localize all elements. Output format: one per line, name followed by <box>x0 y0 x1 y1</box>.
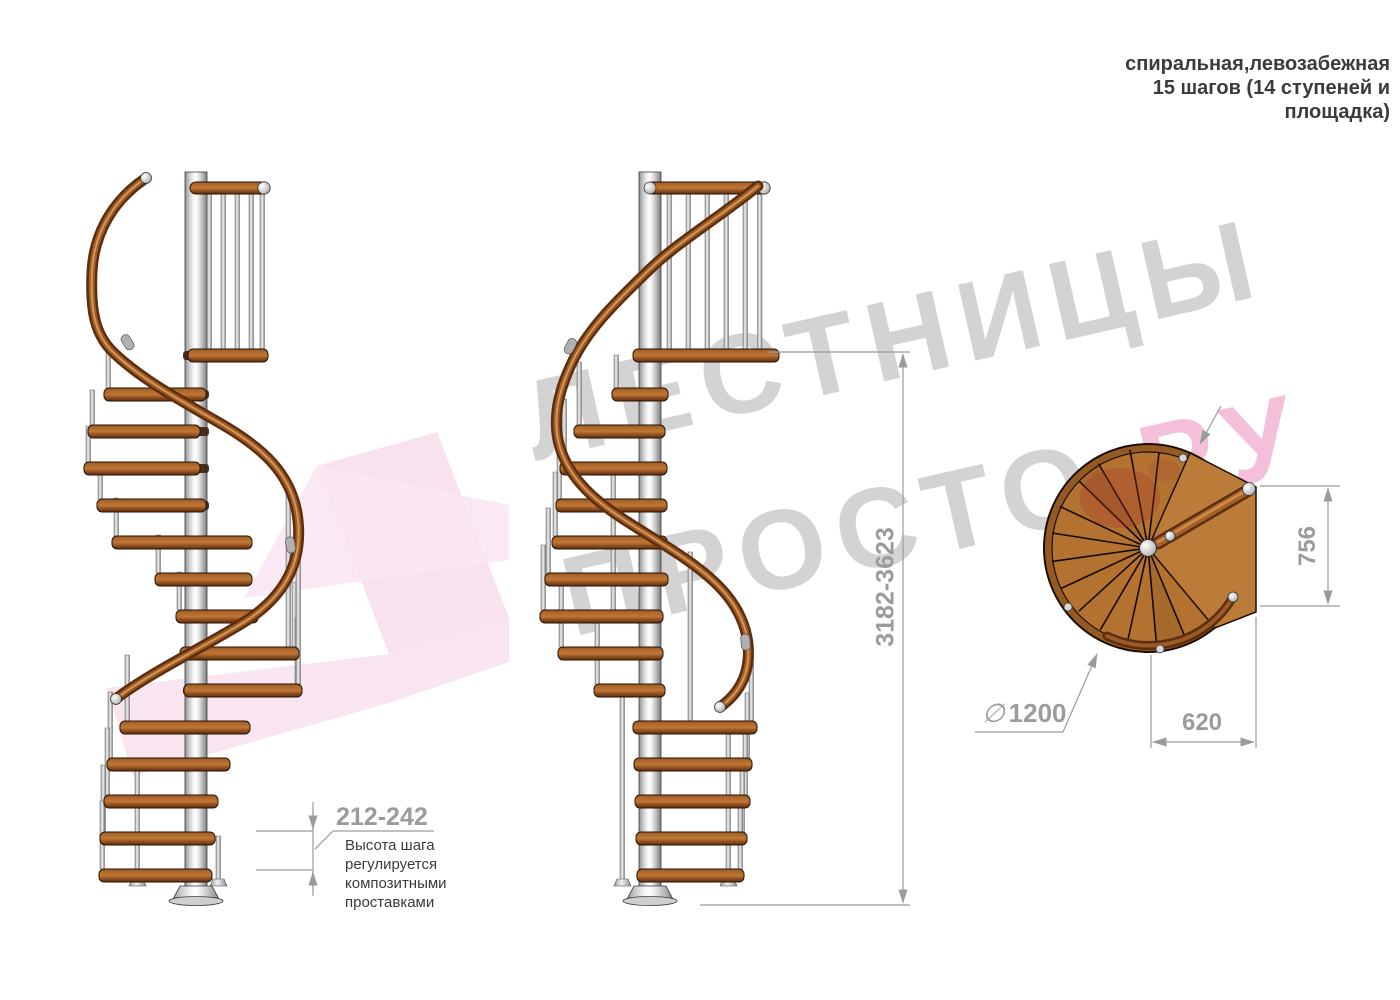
drawing-title: спиральная,левозабежная 15 шагов (14 сту… <box>1125 52 1390 124</box>
dim-label-total-height: 3182-3623 <box>872 527 901 647</box>
dim-label-diameter: ∅1200 <box>982 698 1067 729</box>
dim-label-756: 756 <box>1294 526 1322 566</box>
note-line2: регулируется <box>345 855 447 874</box>
diameter-icon: ∅ <box>982 698 1005 728</box>
dim-value-total-height: 3182-3623 <box>872 527 900 647</box>
step-height-note: Высота шага регулируется композитными пр… <box>345 836 447 912</box>
dim-value-diameter: 1200 <box>1009 698 1067 728</box>
dim-value-756: 756 <box>1294 526 1321 566</box>
title-line1: спиральная,левозабежная <box>1125 52 1390 76</box>
label-layer: спиральная,левозабежная 15 шагов (14 сту… <box>0 0 1400 1000</box>
title-line3: площадка) <box>1125 100 1390 124</box>
title-line2: 15 шагов (14 ступеней и <box>1125 76 1390 100</box>
dim-label-620: 620 <box>1182 709 1222 737</box>
dim-value-620: 620 <box>1182 709 1222 736</box>
note-line1: Высота шага <box>345 836 447 855</box>
note-line3: композитными <box>345 874 447 893</box>
dim-label-step-height: 212-242 <box>336 803 428 832</box>
note-line4: проставками <box>345 893 447 912</box>
dim-value-step-height: 212-242 <box>336 803 428 831</box>
